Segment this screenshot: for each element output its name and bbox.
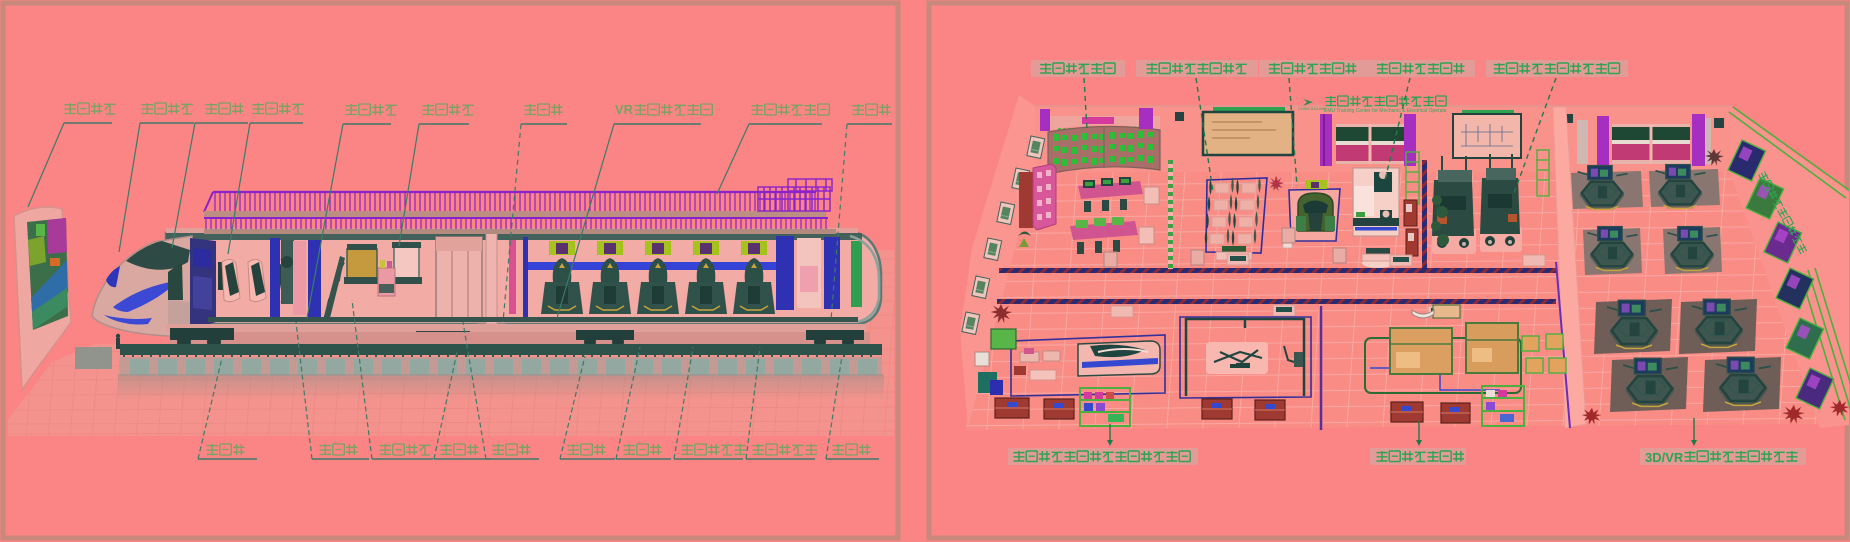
svg-text:VR: VR xyxy=(615,102,634,117)
svg-text:EMU Training Center for Me: EMU Training Center for Mechanic & Elect… xyxy=(1324,108,1447,114)
svg-text:3D/VR: 3D/VR xyxy=(1645,450,1684,465)
svg-text:CHINA RAILWAY: CHINA RAILWAY xyxy=(1298,107,1328,111)
